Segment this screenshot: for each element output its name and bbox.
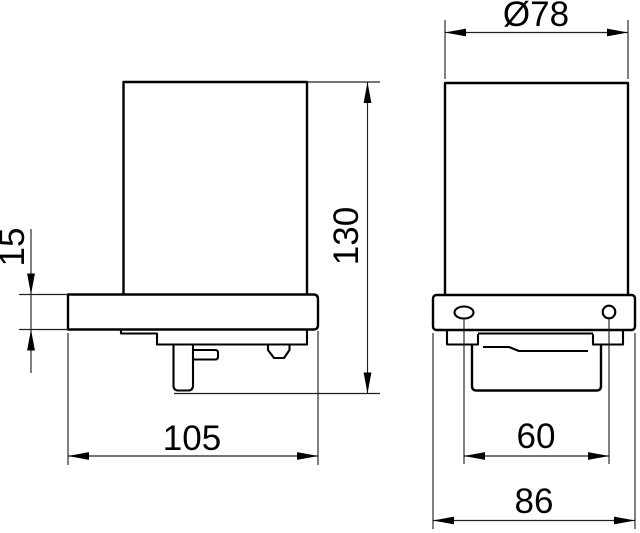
arrowhead-15-down [27, 274, 35, 295]
arrowhead-60-left [464, 452, 485, 460]
arrowhead-86-left [433, 517, 454, 525]
pump-spout [174, 345, 194, 391]
arrowhead-78-left [445, 29, 466, 37]
dim-label-bracket-depth: 105 [163, 419, 221, 458]
glass-outline-front [445, 83, 628, 295]
arrowhead-15-up [27, 330, 35, 351]
arrowhead-130-down [364, 373, 372, 394]
arrowhead-60-right [588, 452, 609, 460]
drawing-svg: 130 15 105 [0, 0, 640, 533]
wall-plate-side [68, 295, 318, 330]
screw-hole-right [603, 306, 616, 319]
front-view: Ø78 60 86 [433, 0, 635, 529]
screw-slot-left [455, 307, 474, 319]
technical-drawing: 130 15 105 [0, 0, 640, 533]
arrowhead-105-left [68, 452, 89, 460]
dim-label-overall-height: 130 [327, 207, 366, 265]
dim-label-plate-width: 86 [515, 482, 554, 521]
dim-label-plate-thickness: 15 [0, 228, 32, 267]
holder-lip-line [483, 347, 588, 351]
dim-label-hole-spacing: 60 [517, 417, 556, 456]
mount-bracket-side [121, 330, 307, 345]
wall-plate-front [433, 295, 635, 330]
arrowhead-105-right [297, 452, 318, 460]
side-view: 130 15 105 [0, 82, 380, 465]
bracket-step-right [593, 330, 623, 345]
arrowhead-86-right [614, 517, 635, 525]
arrowhead-130-up [364, 82, 372, 103]
arrowhead-78-right [607, 29, 628, 37]
glass-outline-side [124, 82, 308, 295]
retainer-clip [268, 345, 290, 359]
pump-lever [193, 350, 218, 360]
dim-label-glass-diameter: Ø78 [503, 0, 569, 34]
bracket-step-left [447, 330, 478, 345]
